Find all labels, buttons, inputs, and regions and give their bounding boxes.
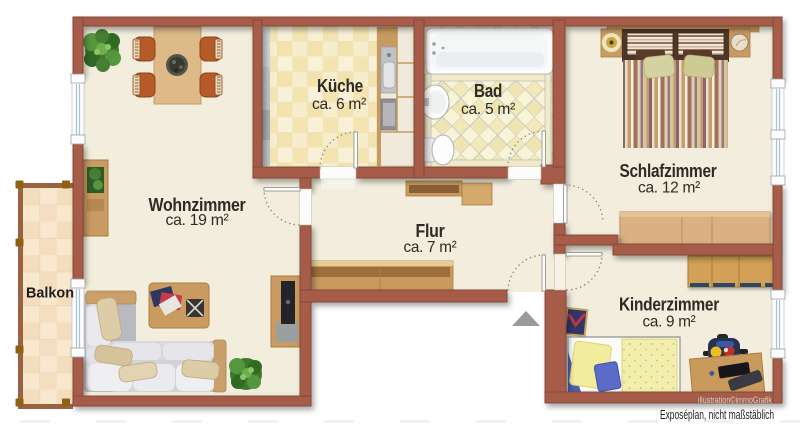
svg-text:Exposéplan, nicht maßstäblich: Exposéplan, nicht maßstäblich (660, 408, 774, 422)
svg-text:ca. 5 m²: ca. 5 m² (461, 101, 516, 118)
svg-text:ca. 6 m²: ca. 6 m² (312, 96, 367, 113)
svg-text:illustration©immoGrafik: illustration©immoGrafik (698, 395, 772, 405)
svg-text:Bad: Bad (474, 81, 502, 101)
svg-text:ca. 12 m²: ca. 12 m² (638, 180, 701, 197)
svg-text:Schlafzimmer: Schlafzimmer (620, 161, 717, 181)
svg-text:Küche: Küche (317, 76, 363, 96)
svg-text:ca. 9 m²: ca. 9 m² (643, 314, 697, 331)
svg-text:ca. 19 m²: ca. 19 m² (166, 212, 230, 229)
svg-text:Flur: Flur (416, 221, 445, 241)
svg-text:Balkon: Balkon (26, 285, 74, 302)
svg-text:Kinderzimmer: Kinderzimmer (619, 295, 719, 315)
svg-text:ca. 7 m²: ca. 7 m² (404, 239, 458, 256)
